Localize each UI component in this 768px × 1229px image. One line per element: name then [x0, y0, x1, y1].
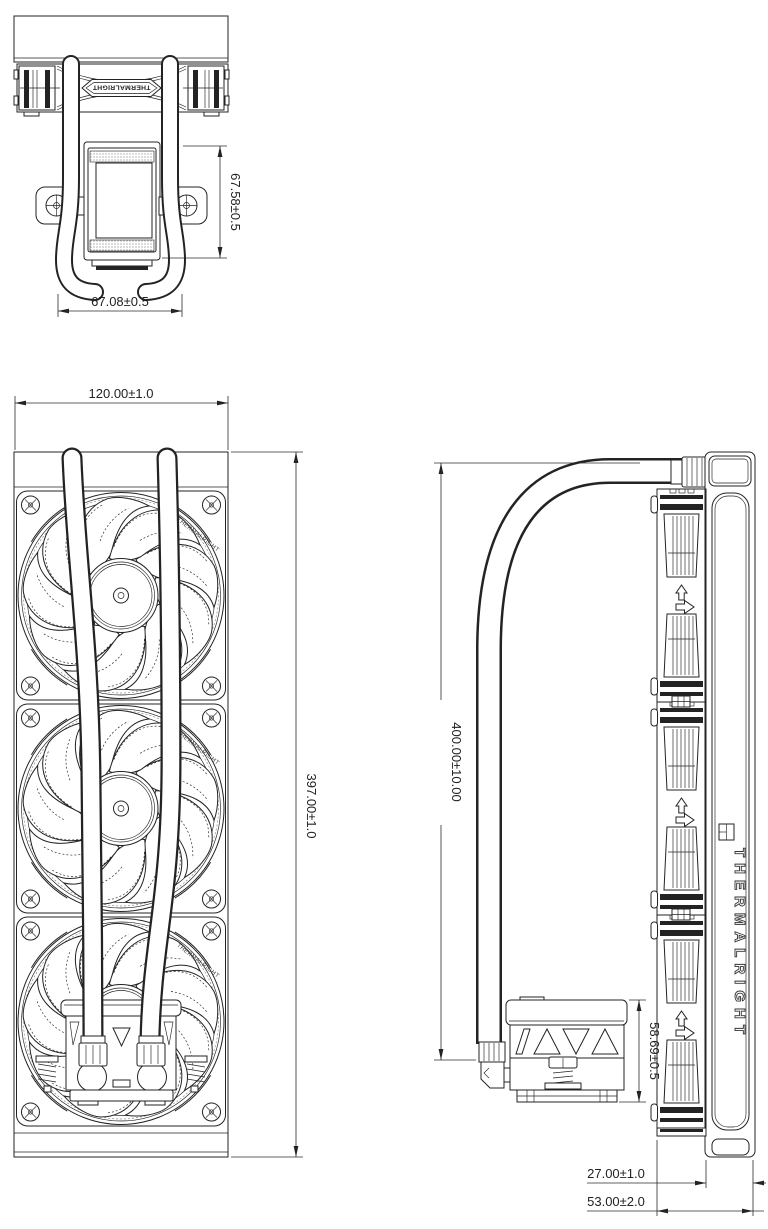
- tube-side: [489, 471, 700, 1044]
- fan-row-edge: THERMALRIGHT: [14, 64, 229, 116]
- pump-block-side: [506, 997, 627, 1102]
- dim-label-total-thickness: 53.00±2.0: [587, 1194, 645, 1209]
- pump-cup: [78, 1063, 107, 1092]
- fan-foot: [204, 112, 219, 116]
- fan-foot: [24, 112, 39, 116]
- dim-radiator-length: 397.00±1.0: [231, 452, 319, 1157]
- dim-label-pump-width: 67.08±0.5: [91, 294, 149, 309]
- radiator-side-label: THERMALRIGHT: [731, 848, 748, 1040]
- dim-label-radiator-thickness: 27.00±1.0: [587, 1166, 645, 1181]
- lcd-screen: [96, 163, 152, 238]
- fan-2: [13, 704, 228, 918]
- cooler-dimension-drawing: THERMALRIGHT: [0, 0, 768, 1229]
- pump-cup: [138, 1063, 167, 1092]
- tube-elbow-side: [479, 1042, 512, 1088]
- dim-tube-length: 400.00±10.00: [434, 463, 640, 1060]
- radiator-side: THERMALRIGHT: [705, 452, 755, 1157]
- fan-2-side: [651, 702, 706, 915]
- thermalright-badge: THERMALRIGHT: [82, 80, 161, 97]
- technical-drawing-page: THERMALRIGHT: [0, 0, 768, 1229]
- badge-label: THERMALRIGHT: [92, 84, 151, 91]
- top-view: 120.00±1.0 397.00±1.0: [13, 386, 319, 1157]
- dim-label-radiator-width: 120.00±1.0: [89, 386, 154, 401]
- fan-1-side: [651, 489, 706, 702]
- dim-label-tube-length: 400.00±10.00: [449, 722, 464, 801]
- dim-label-pump-height: 67.58±0.5: [228, 173, 243, 231]
- fan-junctions: [657, 696, 706, 1136]
- dim-label-pump-block-height: 58.69±0.5: [647, 1022, 662, 1080]
- dim-radiator-width: 120.00±1.0: [15, 386, 228, 450]
- tube-fitting-side-top: [671, 457, 706, 487]
- radiator-edge: [14, 16, 228, 62]
- fan-1: [13, 491, 228, 705]
- dim-label-radiator-length: 397.00±1.0: [304, 774, 319, 839]
- side-view: THERMALRIGHT: [434, 452, 766, 1216]
- front-view: THERMALRIGHT: [14, 16, 243, 317]
